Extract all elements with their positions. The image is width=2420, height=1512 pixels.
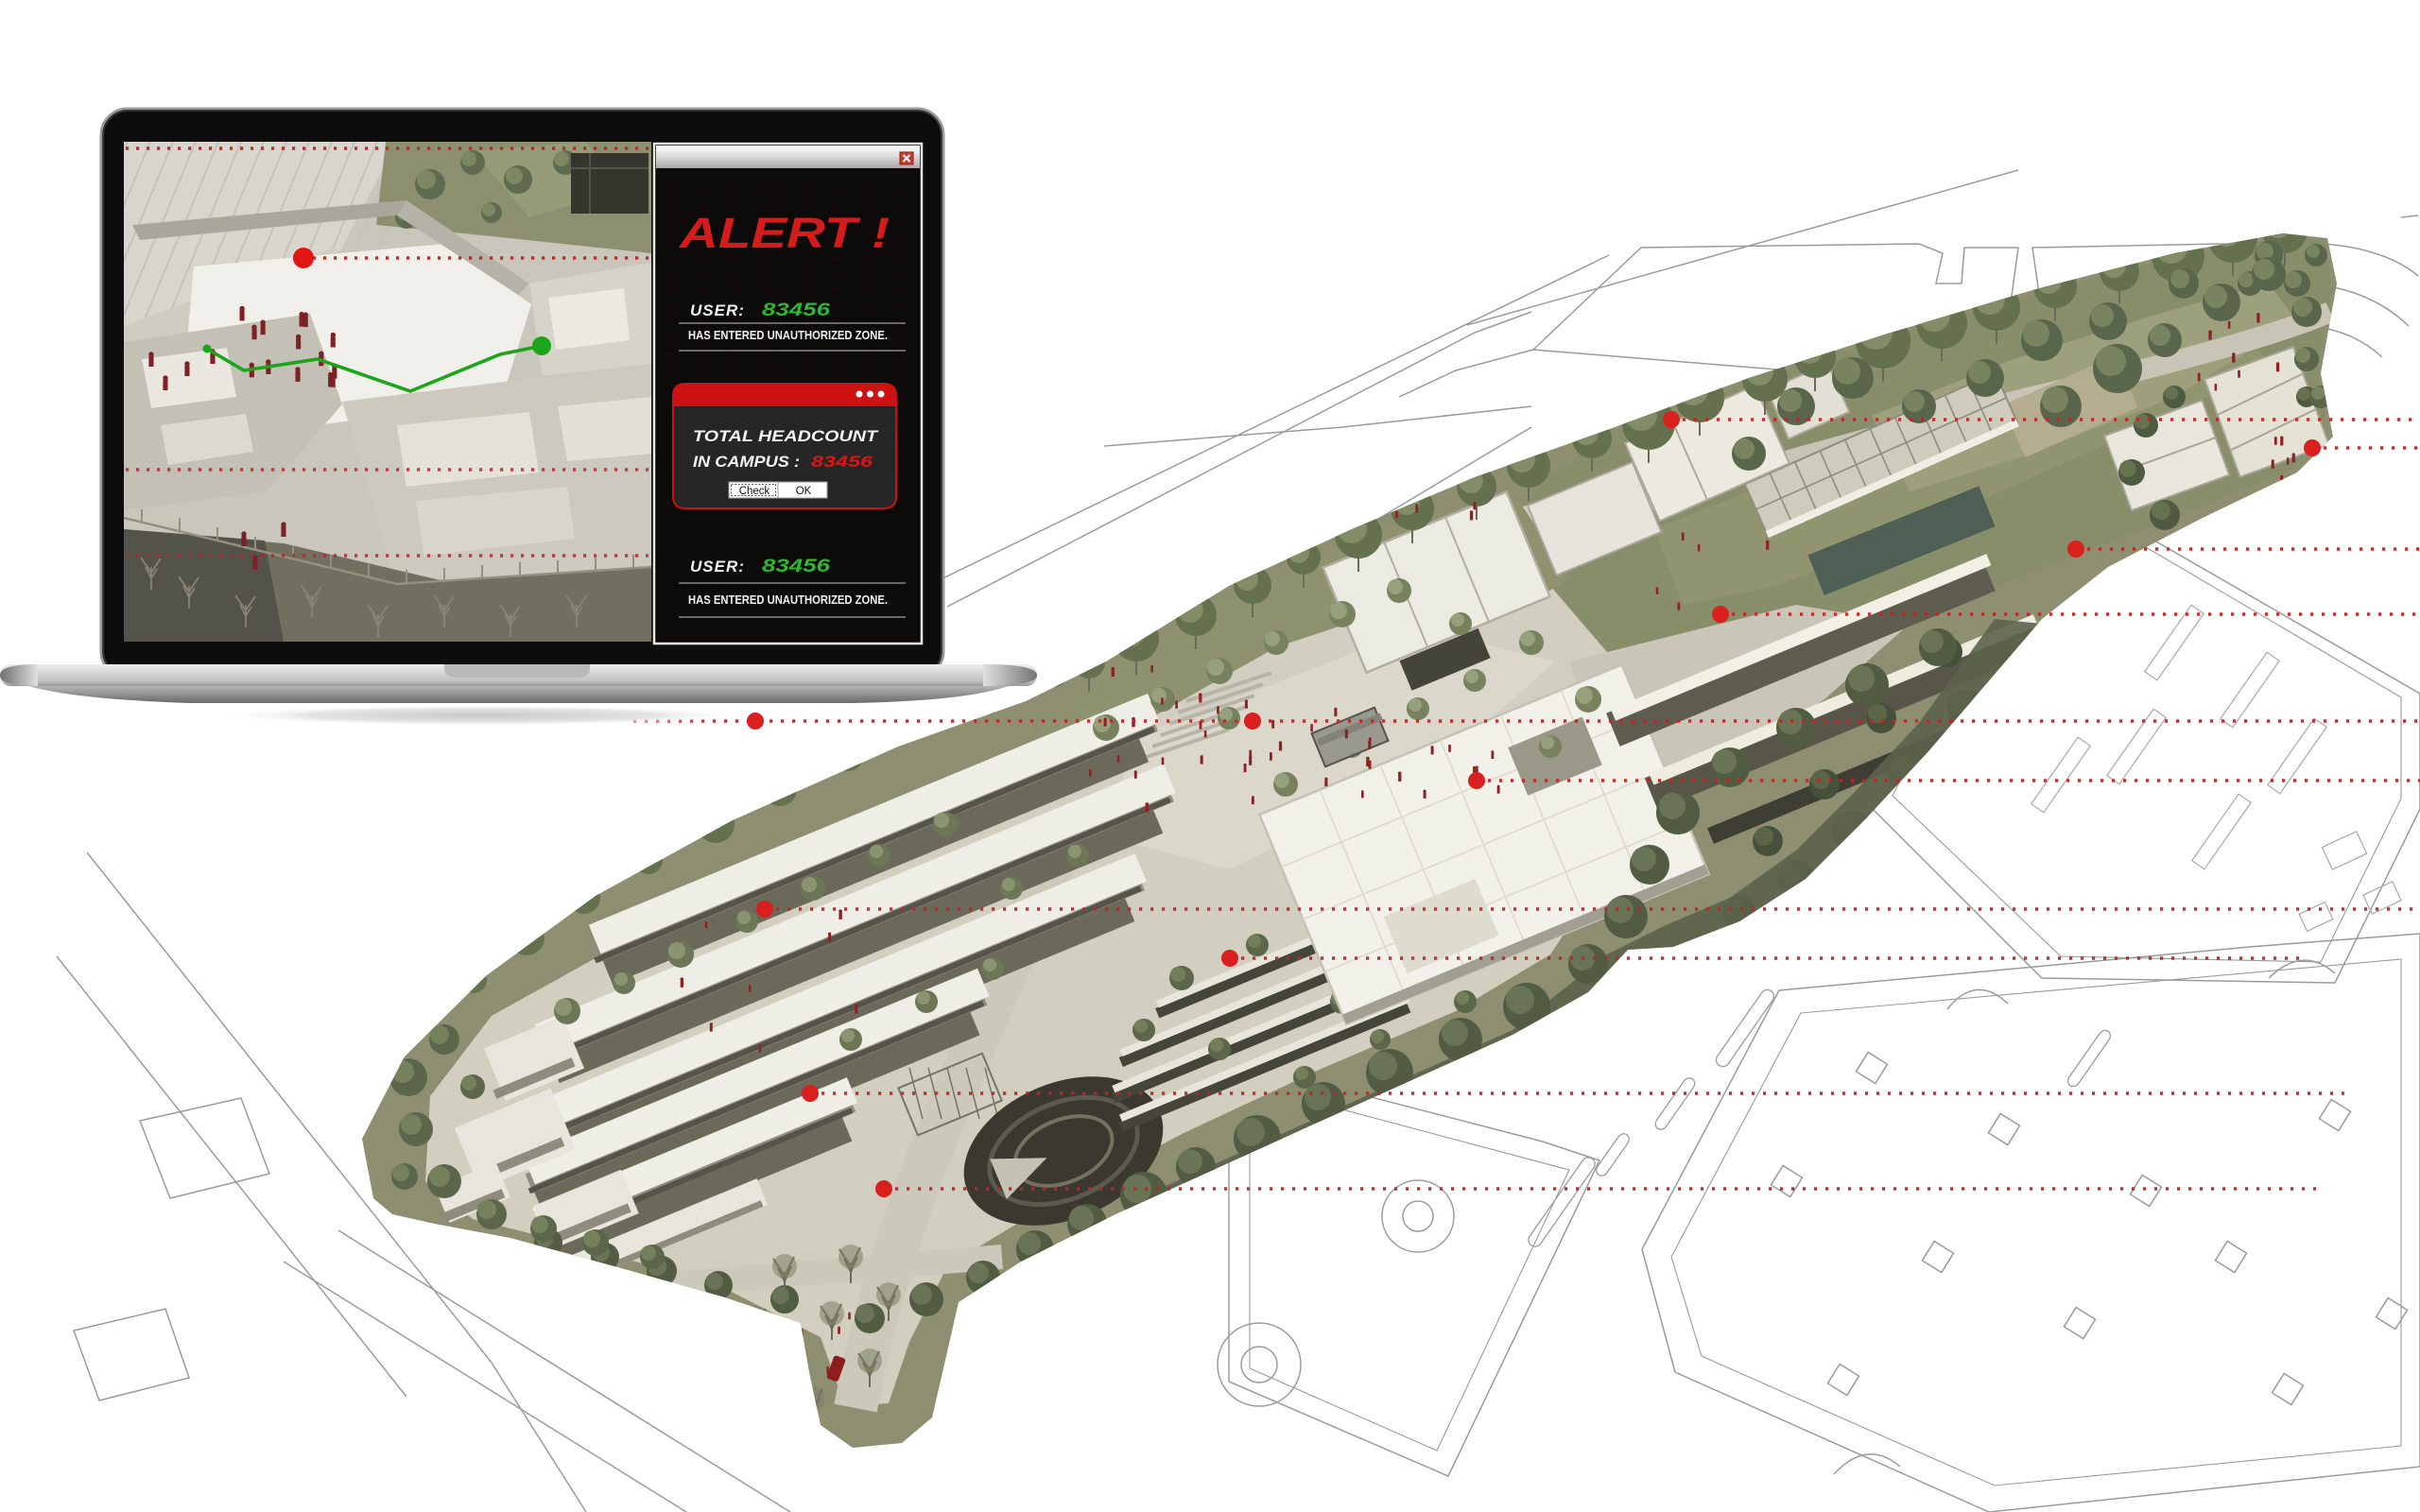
svg-text:OK: OK (796, 486, 812, 497)
svg-text:ALERT !: ALERT ! (679, 209, 890, 257)
svg-text:TOTAL HEADCOUNT: TOTAL HEADCOUNT (693, 428, 879, 445)
svg-text:USER:: USER: (690, 301, 745, 319)
svg-text:83456: 83456 (762, 557, 831, 576)
svg-text:HAS ENTERED UNAUTHORIZED ZONE.: HAS ENTERED UNAUTHORIZED ZONE. (688, 593, 888, 607)
svg-text:IN CAMPUS :: IN CAMPUS : (693, 454, 800, 471)
svg-text:83456: 83456 (762, 301, 831, 320)
svg-text:USER:: USER: (690, 558, 745, 576)
svg-text:Check: Check (739, 486, 770, 497)
svg-text:83456: 83456 (811, 453, 873, 471)
svg-text:HAS ENTERED UNAUTHORIZED ZONE.: HAS ENTERED UNAUTHORIZED ZONE. (688, 329, 888, 342)
